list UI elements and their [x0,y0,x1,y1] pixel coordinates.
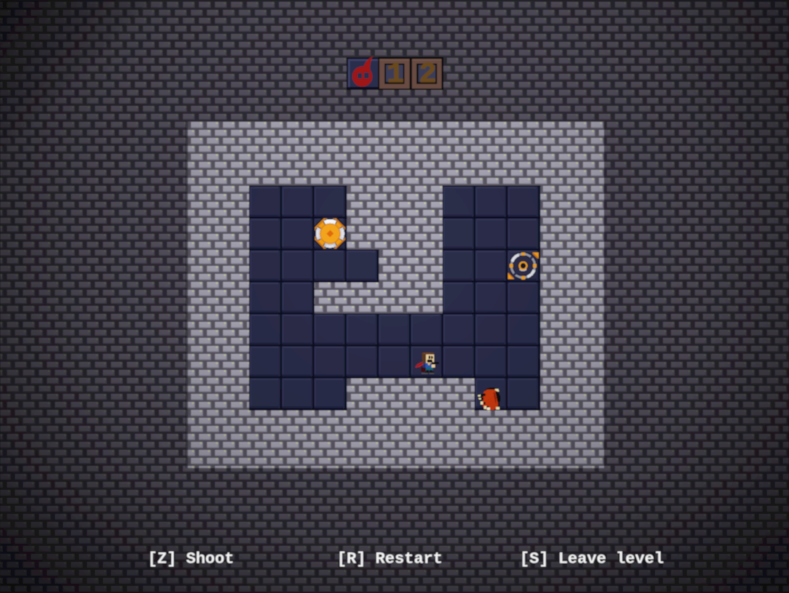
svg-text:1: 1 [387,58,404,91]
svg-text:[S] Leave level: [S] Leave level [520,550,664,568]
svg-text:[R] Restart: [R] Restart [337,550,443,568]
svg-text:[Z] Shoot: [Z] Shoot [148,550,234,568]
svg-text:2: 2 [419,58,436,91]
